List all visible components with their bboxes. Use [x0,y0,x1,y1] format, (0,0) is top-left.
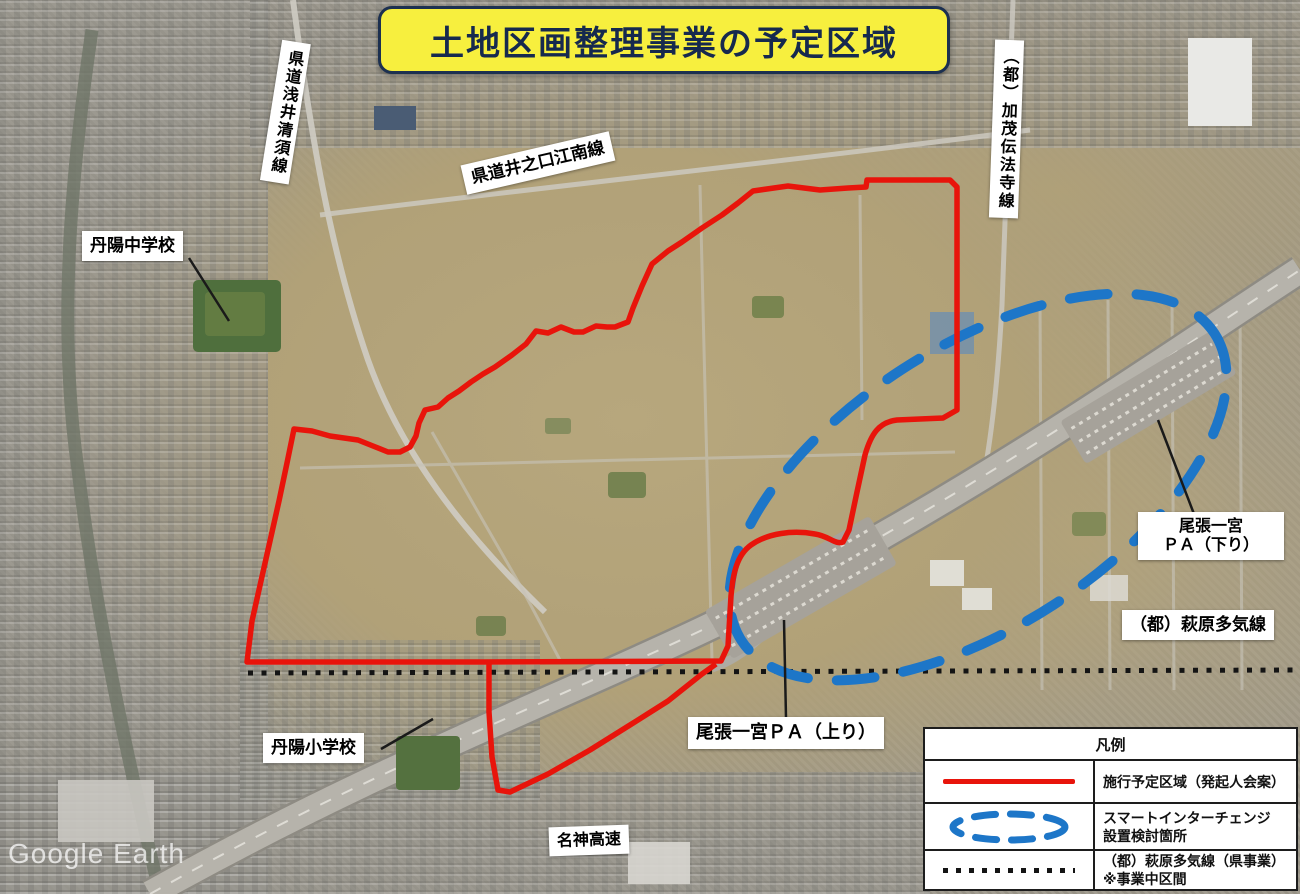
label-meishin-expressway: 名神高速 [549,825,630,857]
page-title: 土地区画整理事業の予定区域 [378,6,950,74]
pointer-pa-kudari [1158,420,1194,514]
legend-row-smart-interchange: スマートインターチェンジ 設置検討箇所 [925,804,1296,851]
pointer-pa-nobori [784,620,786,718]
label-pa-nobori: 尾張一宮ＰＡ（上り） [688,717,884,749]
legend-title: 凡例 [925,729,1296,761]
river [68,30,160,894]
label-road-kamo-denpoji: （都）加茂伝法寺線 [989,40,1024,219]
legend-row-hagiwara-line: （都）萩原多気線（県事業） ※事業中区間 [925,851,1296,889]
legend-label-smart-interchange-2: 設置検討箇所 [1103,827,1296,845]
blue-dashed-ellipse-symbol [925,804,1095,849]
label-tanyo-elementary: 丹陽小学校 [263,733,364,763]
legend-label-hagiwara-1: （都）萩原多気線（県事業） [1103,852,1296,870]
road-asai-kiyosu [293,0,545,612]
legend-label-smart-interchange-1: スマートインターチェンジ [1103,809,1296,827]
black-dotted-line-symbol [925,851,1095,889]
label-pa-kudari: 尾張一宮 ＰＡ（下り） [1138,512,1284,560]
legend-label-planned-area: 施行予定区域（発起人会案） [1103,773,1296,791]
red-solid-line-symbol [925,761,1095,802]
label-tanyo-junior-high: 丹陽中学校 [82,231,183,261]
google-earth-watermark: Google Earth [8,838,185,870]
aerial-map: 県道浅井清須線 丹陽中学校 県道井之口江南線 （都）加茂伝法寺線 尾張一宮 ＰＡ… [0,0,1300,894]
legend: 凡例 施行予定区域（発起人会案） スマートインターチェンジ 設置検討箇所 [923,727,1298,891]
legend-label-hagiwara-2: ※事業中区間 [1103,870,1296,888]
label-road-hagiwara-taki: （都）萩原多気線 [1122,610,1274,640]
road-inokuchi-konan [320,130,1030,215]
label-pa-kudari-line2: ＰＡ（下り） [1163,537,1259,554]
label-pa-kudari-line1: 尾張一宮 [1179,518,1243,535]
legend-row-planned-area: 施行予定区域（発起人会案） [925,761,1296,804]
